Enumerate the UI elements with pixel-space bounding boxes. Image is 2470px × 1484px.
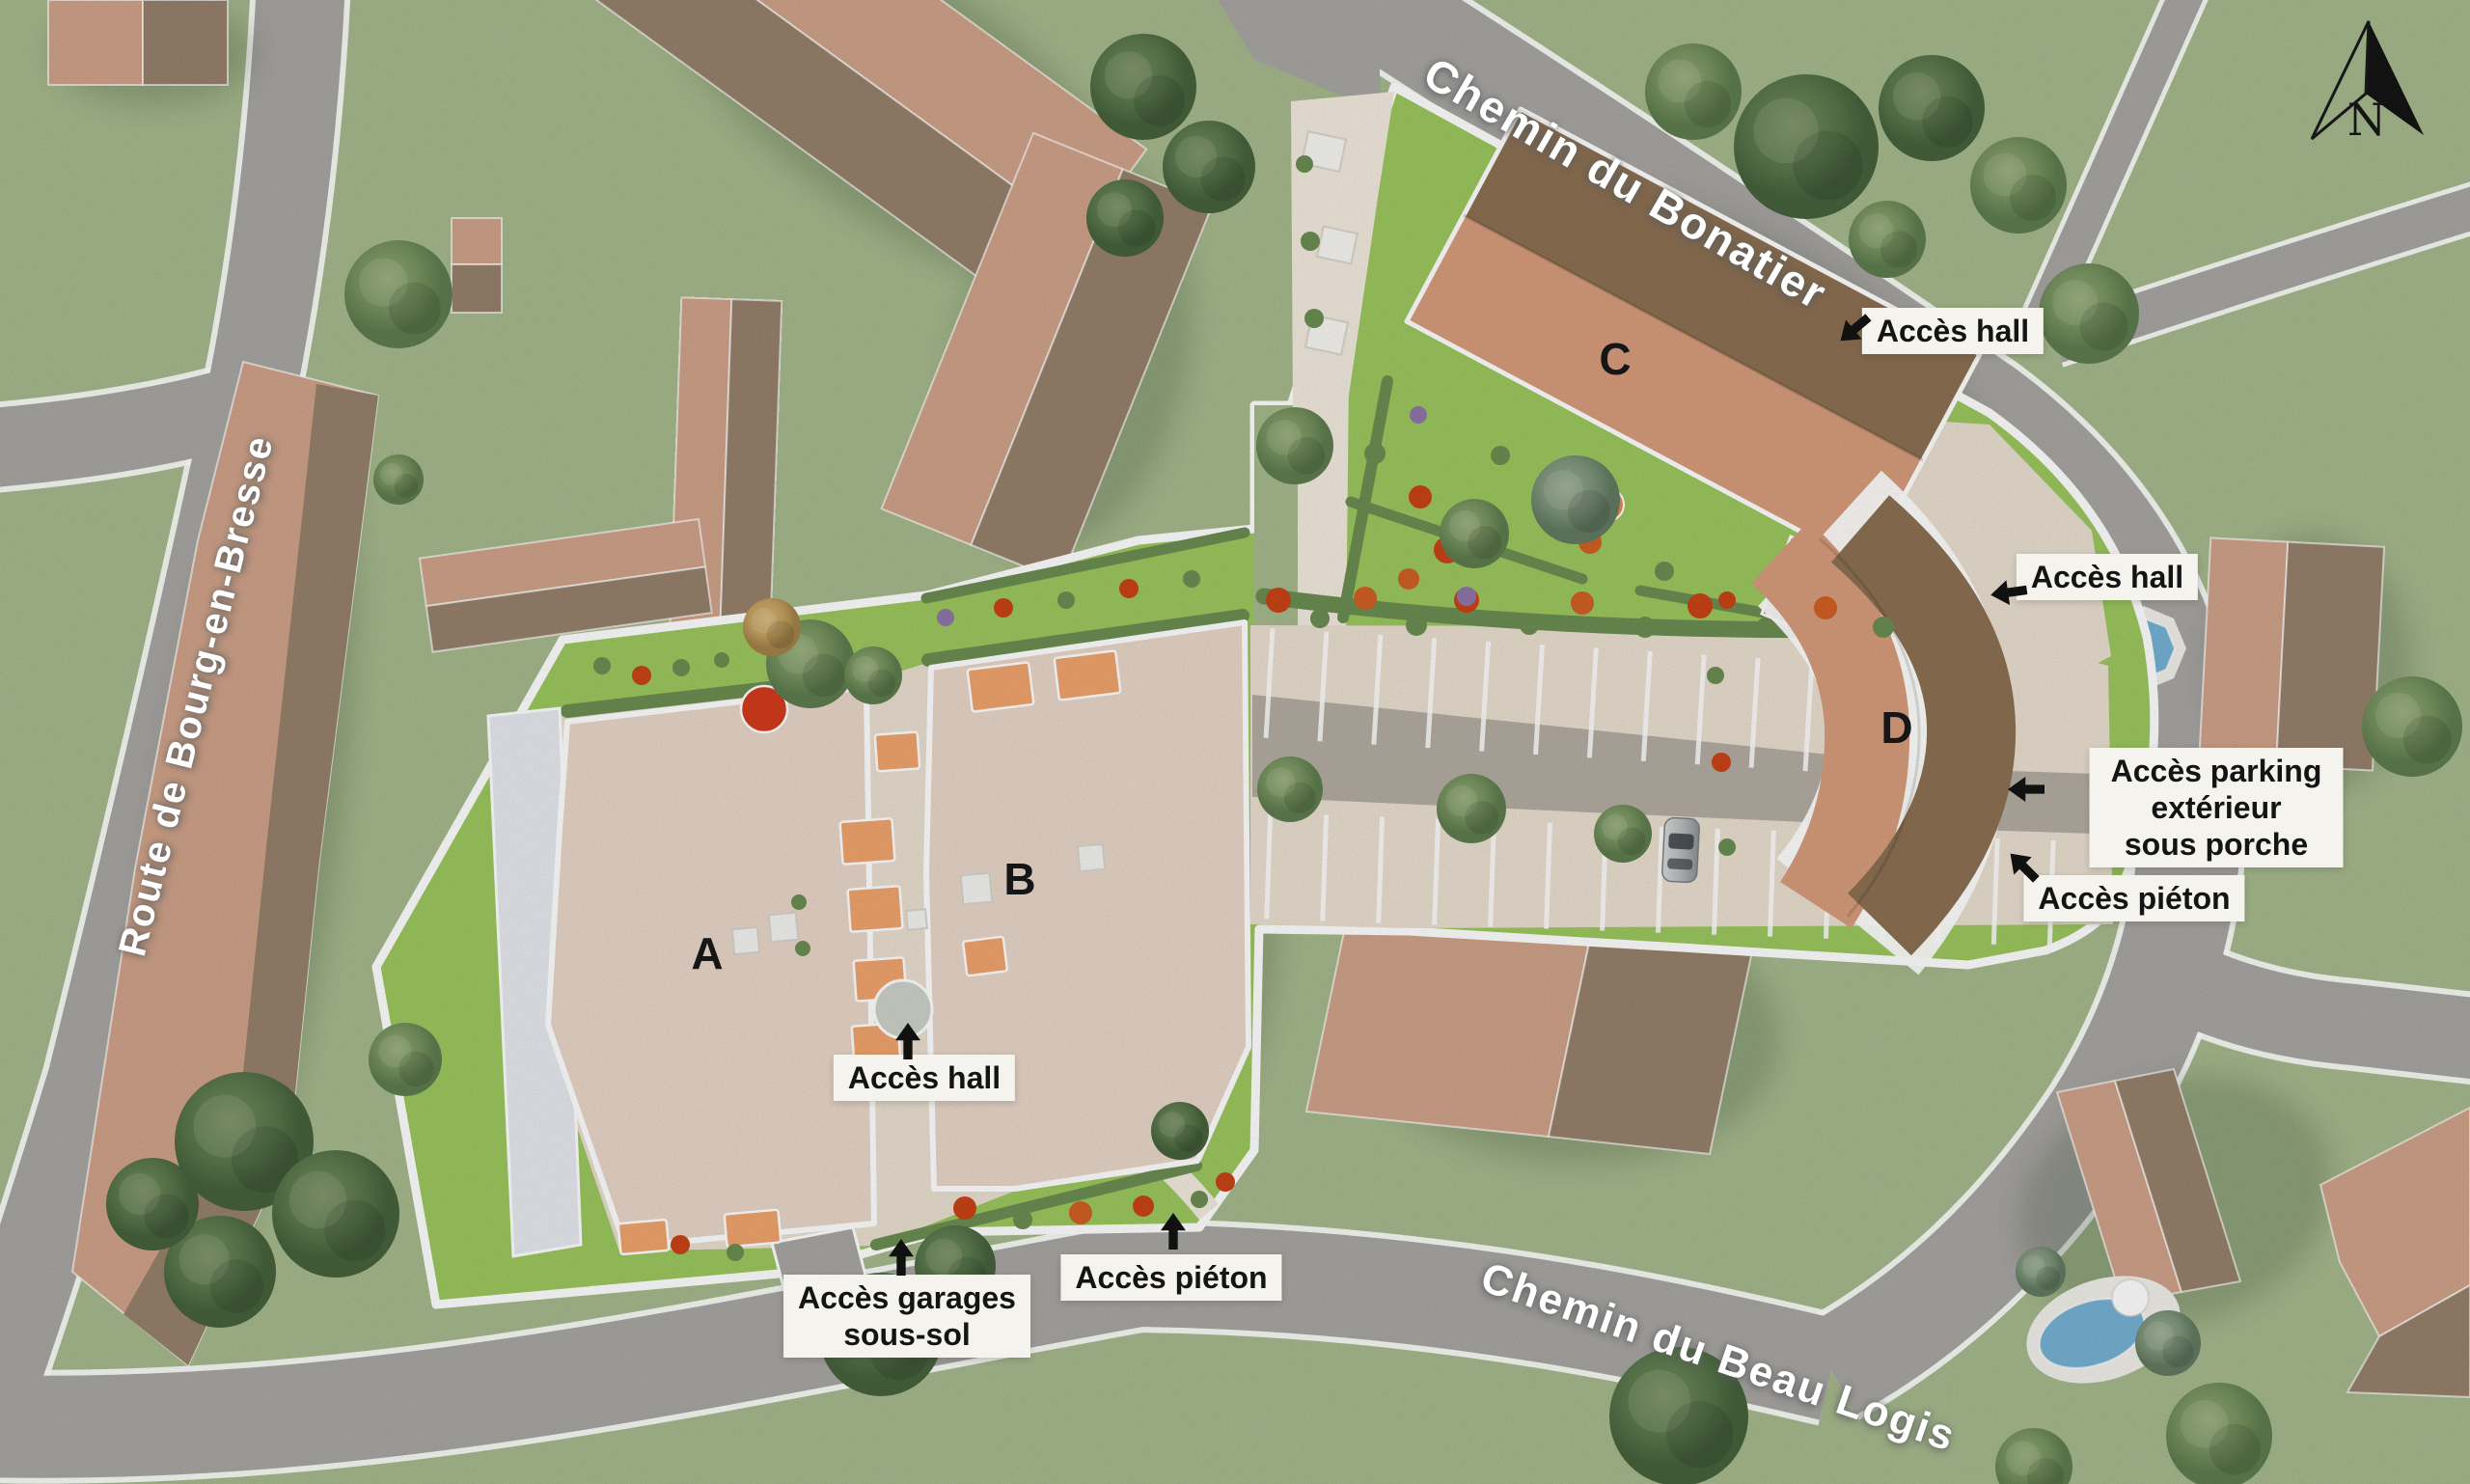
site-plan-map: Chemin du BonatierRoute de Bourg-en-Bres… — [0, 0, 2470, 1484]
map-graphics — [0, 0, 2470, 1484]
grain-texture — [0, 0, 2470, 1484]
